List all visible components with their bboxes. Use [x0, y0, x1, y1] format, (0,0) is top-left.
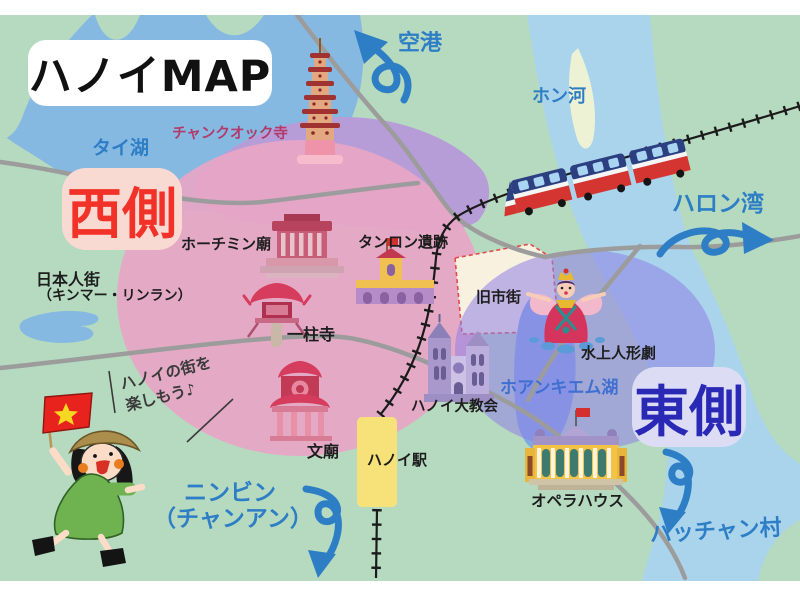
- east-side-badge: 東側: [632, 367, 746, 447]
- label-tran-quoc-temple: チャンクオック寺: [172, 126, 288, 142]
- label-hoan-kiem-lake: ホアンキエム湖: [500, 379, 618, 398]
- label-japanese-town-line2: （キンマー・リンラン）: [38, 289, 192, 305]
- label-one-pillar-pagoda: 一柱寺: [287, 326, 335, 344]
- label-ninh-binh-line1: ニンビン: [184, 481, 276, 507]
- label-old-quarter: 旧市街: [476, 289, 521, 306]
- map-title: ハノイMAP: [28, 40, 272, 106]
- west-side-badge: 西側: [62, 168, 182, 250]
- label-hong-river: ホン河: [532, 87, 586, 107]
- hanoi-illustrated-map: ハノイMAP 西側 東側 タイ湖 空港 ホン河 ハロン湾 バッチャン村 ニンビン…: [0, 0, 800, 600]
- label-thang-long-ruins: タンロン遺跡: [358, 234, 448, 251]
- label-hanoi-station: ハノイ駅: [367, 452, 427, 469]
- label-halong-bay: ハロン湾: [672, 192, 764, 218]
- label-tai-lake: タイ湖: [92, 138, 149, 159]
- label-ninh-binh-line2: （チャンアン）: [153, 507, 313, 533]
- label-japanese-town-line1: 日本人街: [36, 271, 100, 289]
- label-hanoi-cathedral: ハノイ大教会: [411, 399, 498, 415]
- label-airport: 空港: [398, 32, 442, 57]
- top-border: [0, 0, 800, 15]
- bottom-border: [0, 581, 800, 600]
- label-water-puppet-theater: 水上人形劇: [581, 345, 656, 362]
- label-temple-of-literature: 文廟: [307, 443, 339, 461]
- label-hcm-mausoleum: ホーチミン廟: [181, 236, 271, 253]
- label-opera-house: オペラハウス: [531, 493, 624, 510]
